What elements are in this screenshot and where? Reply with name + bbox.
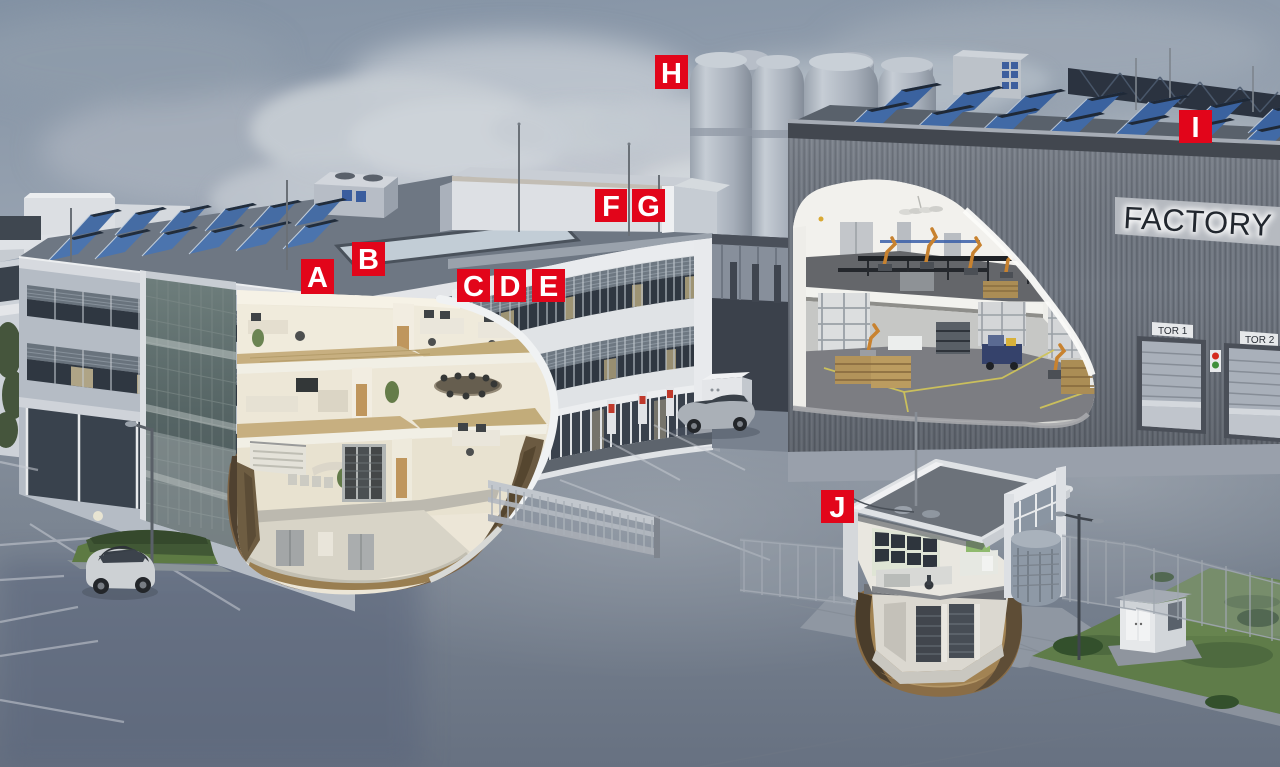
svg-text:I: I	[1191, 112, 1199, 144]
svg-text:TOR 1: TOR 1	[1158, 326, 1188, 337]
svg-text:D: D	[500, 271, 521, 303]
svg-text:A: A	[307, 262, 328, 294]
svg-text:H: H	[661, 58, 682, 90]
svg-text:TOR 2: TOR 2	[1245, 335, 1275, 346]
svg-text:F: F	[602, 191, 620, 223]
svg-text:C: C	[463, 271, 484, 303]
svg-text:E: E	[539, 271, 558, 303]
svg-text:G: G	[637, 191, 660, 223]
svg-text:B: B	[358, 244, 379, 276]
svg-text:J: J	[829, 492, 845, 524]
